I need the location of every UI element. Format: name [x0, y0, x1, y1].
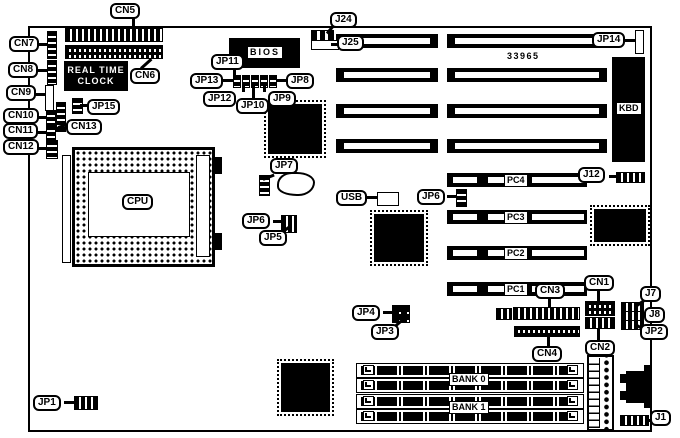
usb-label: USB: [336, 190, 367, 206]
isa-slot-1-right: [447, 34, 607, 48]
label-jp8: JP8: [286, 73, 314, 89]
leader-jp1: [64, 401, 74, 404]
cn12-connector: [46, 140, 58, 159]
jp1-connector: [74, 396, 98, 410]
motherboard-diagram: CN7 CN8 CN9 CN10 CN11 CN12 CN13 JP15 CN5…: [0, 0, 680, 438]
pci-stripe: [488, 177, 505, 183]
label-j12: J12: [578, 167, 605, 183]
leader-jp12: [242, 86, 245, 92]
power-pin-column-left: [589, 358, 600, 428]
cpu-socket-lever-strip: [196, 155, 210, 257]
cpu-side-bar: [62, 155, 71, 263]
cn9-connector: [45, 85, 54, 111]
label-cn9: CN9: [6, 85, 36, 101]
label-j1: J1: [650, 410, 671, 426]
pc2-label: PC2: [504, 247, 528, 260]
label-jp9: JP9: [268, 91, 296, 107]
power-pin-column-right: [601, 357, 612, 429]
jp14-connector: [635, 30, 644, 54]
cn6-connector: [65, 45, 163, 59]
leader-jp13: [222, 79, 233, 82]
pc1-label: PC1: [504, 283, 528, 296]
label-jp3: JP3: [371, 324, 399, 340]
label-cn6: CN6: [130, 68, 160, 84]
cn2-connector: [585, 317, 615, 329]
label-cn4: CN4: [532, 346, 562, 362]
isa-slot-2-left: [336, 68, 438, 82]
leader-cn5: [132, 18, 135, 29]
j24-connector: [311, 30, 334, 41]
oscillator-outline: [277, 172, 315, 196]
label-cn13: CN13: [66, 119, 102, 135]
simm-latch: [363, 411, 374, 421]
simm-latch: [567, 380, 578, 390]
cn5-connector: [65, 28, 163, 42]
label-jp2: JP2: [640, 324, 668, 340]
label-jp6-left: JP6: [242, 213, 270, 229]
label-cn2: CN2: [585, 340, 615, 356]
leader-jp9: [263, 86, 266, 92]
cn1-connector: [585, 301, 615, 316]
cn3-connector-b: [513, 307, 580, 320]
cn8-connector: [47, 60, 57, 85]
isa-slot-2-right: [447, 68, 607, 82]
cn11-connector: [46, 125, 56, 141]
label-jp1: JP1: [33, 395, 61, 411]
cn3-connector-a: [496, 308, 512, 320]
simm-latch: [567, 411, 578, 421]
leader-jp6-left: [273, 220, 281, 223]
rear-port-pin-bottom: [620, 391, 627, 400]
label-j8: J8: [644, 307, 665, 323]
leader-cn8: [37, 69, 47, 72]
label-jp13: JP13: [190, 73, 223, 89]
rear-port-pin-top: [620, 374, 627, 383]
label-j25: J25: [337, 35, 364, 51]
pci-stripe: [488, 250, 505, 256]
label-cn7: CN7: [9, 36, 39, 52]
leader-jp8: [276, 79, 286, 82]
label-jp7: JP7: [270, 158, 298, 174]
real-time-clock-chip: REAL TIME CLOCK: [64, 61, 128, 91]
at-power-connector: [587, 355, 614, 431]
usb-header: [377, 192, 399, 206]
label-cn5: CN5: [110, 3, 140, 19]
label-jp4: JP4: [352, 305, 380, 321]
leader-jp14: [624, 39, 635, 42]
label-cn8: CN8: [8, 62, 38, 78]
rear-port-connector-edge: [644, 365, 652, 408]
simm-latch: [363, 365, 374, 375]
pc4-label: PC4: [504, 174, 528, 187]
bios-label: BIOS: [247, 46, 283, 59]
isa-slot-3-right: [447, 104, 607, 118]
chipset-chip-1: [268, 104, 322, 154]
io-chip: [594, 209, 646, 242]
label-jp5: JP5: [259, 230, 287, 246]
label-cn10: CN10: [3, 108, 39, 124]
label-cn11: CN11: [3, 123, 38, 139]
jumper-block-1: [233, 75, 241, 88]
pc3-label: PC3: [504, 211, 528, 224]
leader-cn1: [597, 290, 600, 301]
jp6-right-jumper: [456, 189, 467, 207]
leader-usb: [366, 196, 377, 199]
label-j7: J7: [640, 286, 661, 302]
simm-latch: [567, 396, 578, 406]
chipset-chip-3: [281, 363, 330, 412]
label-j24: J24: [330, 12, 357, 28]
bank0-label: BANK 0: [449, 373, 489, 386]
pci-stripe: [488, 286, 505, 292]
rtc-text-line2: CLOCK: [64, 76, 128, 87]
cn10-connector: [46, 110, 56, 126]
label-cn12: CN12: [3, 139, 39, 155]
kbd-label: KBD: [616, 102, 642, 115]
label-jp12: JP12: [203, 91, 236, 107]
label-cn1: CN1: [584, 275, 614, 291]
label-jp14: JP14: [592, 32, 625, 48]
cpu-tab-top: [213, 157, 222, 174]
isa-slot-4-left: [336, 139, 438, 153]
pci-stripe: [488, 214, 505, 220]
rtc-text-line1: REAL TIME: [64, 65, 128, 76]
j12-connector: [616, 172, 645, 183]
simm-latch: [363, 396, 374, 406]
label-jp11: JP11: [211, 54, 244, 70]
leader-jp4: [383, 311, 392, 314]
label-jp6-right: JP6: [417, 189, 445, 205]
leader-cn7: [38, 43, 48, 46]
leader-jp6-right: [447, 195, 456, 198]
cn7-connector: [47, 31, 57, 59]
isa-slot-3-left: [336, 104, 438, 118]
isa-slot-4-right: [447, 139, 607, 153]
cpu-tab-bottom: [213, 233, 222, 250]
part-number-text: 33965: [507, 51, 540, 61]
simm-latch: [363, 380, 374, 390]
leader-j12: [609, 175, 616, 178]
simm-latch: [567, 365, 578, 375]
bank1-label: BANK 1: [449, 401, 489, 414]
label-jp10: JP10: [236, 98, 269, 114]
label-jp15: JP15: [87, 99, 120, 115]
leader-cn9: [35, 93, 46, 96]
chipset-chip-2: [374, 214, 424, 262]
label-cn3: CN3: [535, 283, 565, 299]
cpu-label: CPU: [122, 194, 153, 210]
